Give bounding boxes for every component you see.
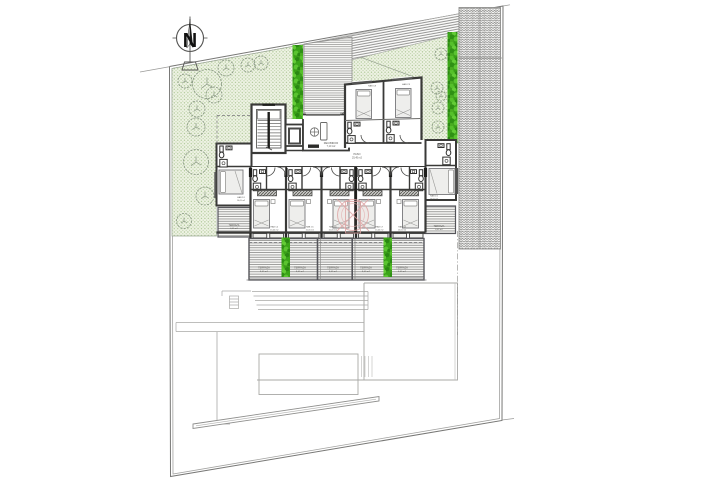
svg-text:HAB C7: HAB C7 <box>375 226 383 229</box>
svg-text:8,05 m2: 8,05 m2 <box>362 271 371 273</box>
svg-text:HAB C5: HAB C5 <box>306 226 314 229</box>
svg-text:HAB C6: HAB C6 <box>329 226 337 229</box>
svg-text:15,05 m2: 15,05 m2 <box>375 229 384 231</box>
svg-text:N: N <box>183 30 197 52</box>
svg-text:7,10 m2: 7,10 m2 <box>327 145 336 148</box>
svg-text:TERRAZA: TERRAZA <box>360 267 372 270</box>
svg-text:PASO: PASO <box>353 152 360 156</box>
svg-text:TERRAZA: TERRAZA <box>434 225 445 228</box>
svg-text:HAB D1: HAB D1 <box>430 195 439 198</box>
svg-text:HAB C8: HAB C8 <box>398 226 406 229</box>
svg-text:8,05 m2: 8,05 m2 <box>296 271 305 273</box>
svg-text:15,05 m2: 15,05 m2 <box>329 229 338 231</box>
svg-text:TERRAZA: TERRAZA <box>294 267 306 270</box>
svg-text:14,05 m2: 14,05 m2 <box>237 200 246 202</box>
svg-text:HAB C8: HAB C8 <box>368 85 377 88</box>
svg-text:TERRAZA: TERRAZA <box>327 267 339 270</box>
svg-text:15,05 m2: 15,05 m2 <box>306 229 315 231</box>
svg-text:15,05 m2: 15,05 m2 <box>398 229 407 231</box>
svg-text:6,05 m2: 6,05 m2 <box>230 228 238 230</box>
svg-text:8,05 m2: 8,05 m2 <box>260 271 269 273</box>
svg-text:6,05 m2: 6,05 m2 <box>435 229 443 231</box>
svg-text:HAB D1: HAB D1 <box>237 196 245 199</box>
svg-text:HAB C4: HAB C4 <box>270 226 278 229</box>
svg-text:15,05 m2: 15,05 m2 <box>270 229 279 231</box>
svg-text:14,05 m2: 14,05 m2 <box>430 198 439 200</box>
svg-text:TERRAZA: TERRAZA <box>258 267 270 270</box>
svg-text:HAB C9: HAB C9 <box>402 83 411 86</box>
svg-text:8,05 m2: 8,05 m2 <box>398 271 407 273</box>
svg-text:TERRAZA: TERRAZA <box>396 267 408 270</box>
svg-text:25,45 m2: 25,45 m2 <box>352 156 363 159</box>
svg-text:TERRAZA: TERRAZA <box>229 224 240 227</box>
svg-text:8,05 m2: 8,05 m2 <box>329 271 338 273</box>
